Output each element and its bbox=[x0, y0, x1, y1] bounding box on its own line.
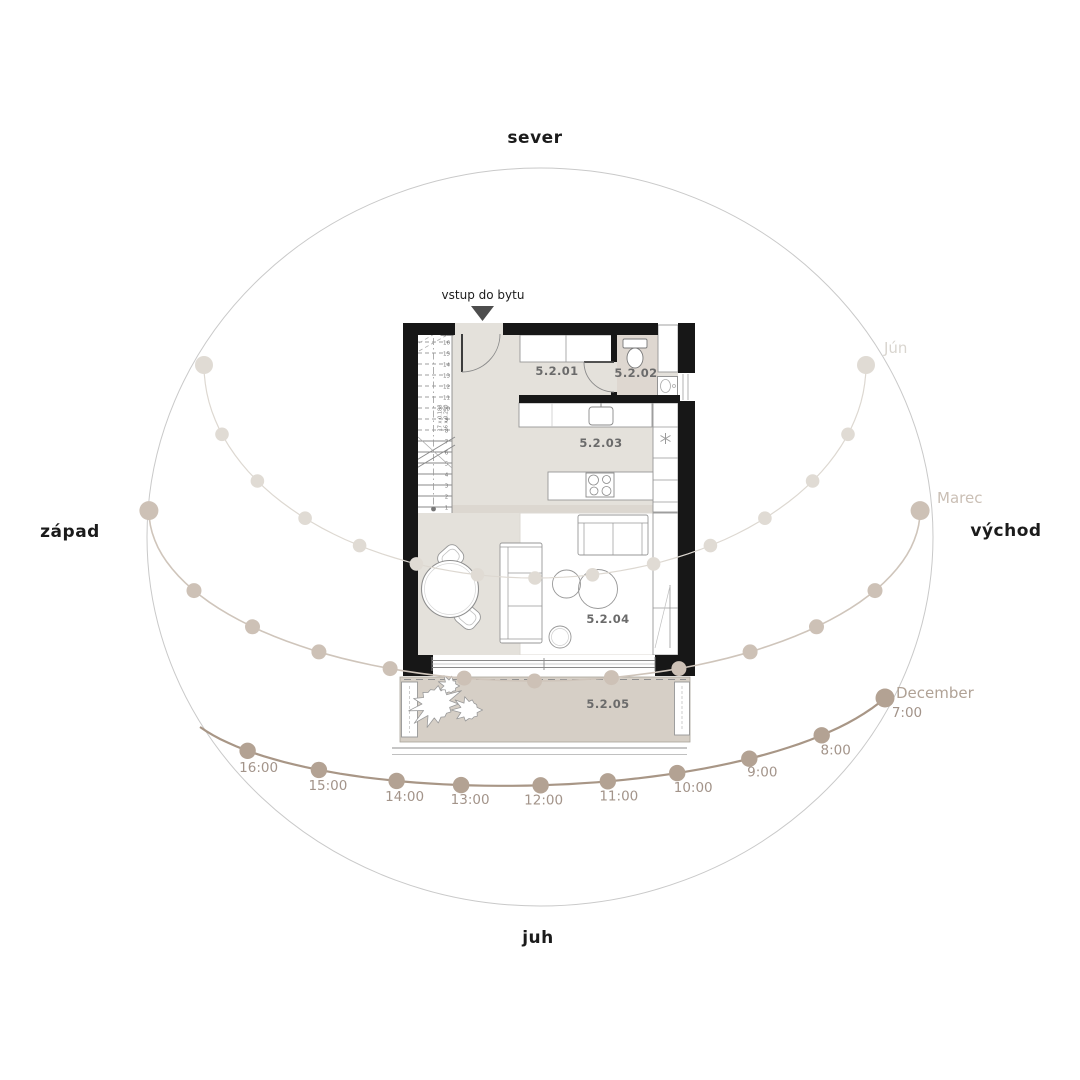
stair-walkline-start-dot bbox=[431, 507, 436, 512]
shaft bbox=[658, 325, 678, 372]
time-label: 16:00 bbox=[239, 760, 278, 776]
east-window-gap bbox=[678, 373, 695, 401]
december-hour-dot bbox=[388, 773, 404, 789]
december-hour-dot bbox=[532, 777, 548, 793]
room-label-balcony: 5.2.05 bbox=[586, 697, 629, 711]
kitchen-living-step bbox=[420, 505, 653, 513]
sink bbox=[589, 407, 613, 425]
stair-step-number: 12 bbox=[443, 385, 450, 391]
june-hour-dot bbox=[410, 557, 424, 571]
march-hour-dot bbox=[527, 674, 542, 689]
december-hour-dot bbox=[669, 765, 685, 781]
june-hour-dot bbox=[586, 568, 600, 582]
stair-dimension-note: 16 x 0.250 bbox=[444, 405, 450, 432]
march-hour-dot bbox=[139, 501, 158, 520]
wall bbox=[503, 323, 658, 335]
june-hour-dot bbox=[758, 511, 772, 525]
june-hour-dot bbox=[528, 571, 542, 585]
june-hour-dot bbox=[806, 474, 820, 488]
month-label-march: Marec bbox=[937, 489, 982, 507]
june-hour-dot bbox=[471, 568, 485, 582]
march-hour-dot bbox=[671, 661, 686, 676]
march-hour-dot bbox=[809, 619, 824, 634]
december-hour-dot bbox=[239, 743, 255, 759]
wall bbox=[403, 323, 418, 676]
time-label: 7:00 bbox=[892, 705, 922, 721]
room-label-hall: 5.2.01 bbox=[535, 364, 578, 378]
wall bbox=[678, 323, 695, 373]
stair-step-number: 6 bbox=[445, 451, 449, 457]
wardrobe-column bbox=[653, 513, 678, 655]
month-label-december: December bbox=[896, 684, 975, 702]
time-label: 15:00 bbox=[308, 778, 347, 794]
sofa-long bbox=[500, 543, 542, 643]
kitchen-counter bbox=[519, 403, 652, 427]
wall-kitchen bbox=[519, 395, 680, 403]
march-hour-dot bbox=[311, 644, 326, 659]
compass-north: sever bbox=[507, 128, 562, 148]
room-label-kitchen: 5.2.03 bbox=[579, 436, 622, 450]
march-hour-dot bbox=[245, 619, 260, 634]
month-label-june: Jún bbox=[883, 339, 907, 357]
compass-east: východ bbox=[970, 521, 1041, 541]
june-hour-dot bbox=[251, 474, 265, 488]
room-label-wc: 5.2.02 bbox=[614, 366, 657, 380]
stair-step-number: 16 bbox=[443, 341, 450, 347]
floor-plan: 1234567891011121314151617 17 x 0.188 16 … bbox=[392, 288, 695, 755]
stair-step-number: 1 bbox=[445, 506, 449, 512]
december-hour-dot bbox=[600, 773, 616, 789]
june-hour-dot bbox=[298, 511, 312, 525]
december-hour-dot bbox=[453, 777, 469, 793]
march-hour-dot bbox=[383, 661, 398, 676]
stair-step-number: 2 bbox=[445, 495, 449, 501]
june-hour-dot bbox=[704, 539, 718, 553]
december-hour-dot bbox=[311, 762, 327, 778]
sun-path-floor-plan-diagram: 1234567891011121314151617 17 x 0.188 16 … bbox=[0, 0, 1080, 1080]
december-hour-dot bbox=[814, 727, 830, 743]
entrance-threshold bbox=[455, 323, 503, 335]
toilet-bowl bbox=[627, 348, 643, 368]
time-label: 12:00 bbox=[524, 792, 563, 808]
entrance-label: vstup do bytu bbox=[442, 288, 525, 302]
time-label: 10:00 bbox=[674, 780, 713, 796]
march-hour-dot bbox=[187, 583, 202, 598]
wall bbox=[678, 401, 695, 672]
time-label: 8:00 bbox=[821, 742, 851, 758]
compass-south: juh bbox=[521, 928, 554, 948]
time-label: 13:00 bbox=[451, 792, 490, 808]
march-hour-dot bbox=[457, 671, 472, 686]
stair-step-number: 11 bbox=[443, 396, 450, 402]
time-label: 11:00 bbox=[599, 788, 638, 804]
pouf bbox=[549, 626, 571, 648]
march-hour-dot bbox=[604, 670, 619, 685]
march-hour-dot bbox=[911, 501, 930, 520]
june-hour-dot bbox=[215, 428, 229, 442]
stair-step-number: 14 bbox=[443, 363, 450, 369]
march-hour-dot bbox=[868, 583, 883, 598]
stair-step-number: 4 bbox=[445, 473, 449, 479]
march-hour-dot bbox=[743, 644, 758, 659]
june-hour-dot bbox=[841, 428, 855, 442]
june-hour-dot bbox=[353, 539, 367, 553]
tall-units-column bbox=[653, 403, 678, 512]
toilet-tank bbox=[623, 339, 647, 348]
wall-wc-partition bbox=[611, 335, 617, 362]
time-label: 14:00 bbox=[385, 789, 424, 805]
time-label: 9:00 bbox=[747, 765, 777, 781]
stair-step-number: 15 bbox=[443, 352, 450, 358]
dining-table bbox=[422, 561, 479, 618]
stair-step-number: 3 bbox=[445, 484, 449, 490]
compass-west: západ bbox=[40, 522, 100, 542]
room-label-living: 5.2.04 bbox=[586, 612, 629, 626]
stair-step-number: 13 bbox=[443, 374, 450, 380]
june-hour-dot bbox=[195, 356, 213, 374]
june-hour-dot bbox=[857, 356, 875, 374]
june-hour-dot bbox=[647, 557, 661, 571]
window-zone bbox=[418, 655, 678, 677]
entrance-arrow-icon bbox=[471, 306, 494, 321]
